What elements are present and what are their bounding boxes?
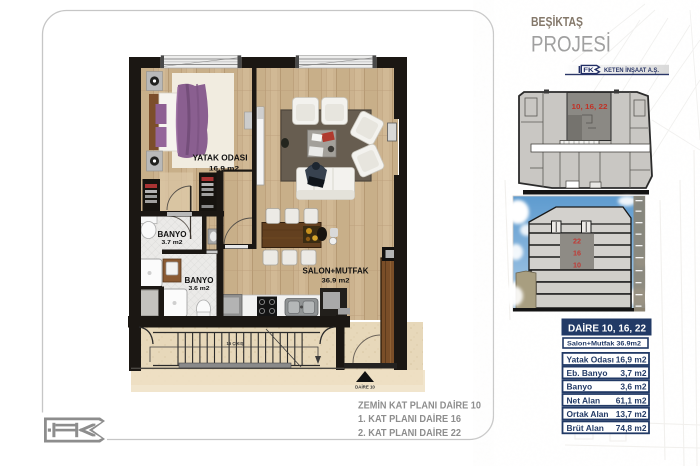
svg-text:16: 16 xyxy=(573,249,581,258)
svg-text:Ortak Alan: Ortak Alan xyxy=(567,409,609,419)
svg-text:DAİRE 10: DAİRE 10 xyxy=(355,385,375,390)
svg-text:2. KAT PLANI DAİRE 22: 2. KAT PLANI DAİRE 22 xyxy=(358,426,461,439)
svg-text:16.9 m2: 16.9 m2 xyxy=(209,166,239,173)
svg-text:Yatak Odası: Yatak Odası xyxy=(567,354,615,364)
svg-text:74,8 m2: 74,8 m2 xyxy=(616,423,647,433)
svg-text:Eb. Banyo: Eb. Banyo xyxy=(567,368,608,378)
svg-text:YATAK ODASI: YATAK ODASI xyxy=(193,154,248,163)
svg-text:3,6 m2: 3,6 m2 xyxy=(620,382,646,392)
svg-text:3,7 m2: 3,7 m2 xyxy=(620,368,646,378)
svg-text:BANYO: BANYO xyxy=(185,276,214,285)
svg-text:1. KAT PLANI DAİRE 16: 1. KAT PLANI DAİRE 16 xyxy=(358,412,461,425)
svg-text:Salon+Mutfak 36.9m2: Salon+Mutfak 36.9m2 xyxy=(567,341,641,348)
svg-text:BEŞİKTAŞ: BEŞİKTAŞ xyxy=(531,14,583,29)
svg-text:KETEN İNŞAAT A.Ş.: KETEN İNŞAAT A.Ş. xyxy=(604,67,659,74)
svg-text:ZEMİN KAT PLANI DAİRE 10: ZEMİN KAT PLANI DAİRE 10 xyxy=(358,399,481,412)
svg-text:10: 10 xyxy=(573,261,581,270)
svg-text:16 ÇIKIŞ: 16 ÇIKIŞ xyxy=(227,341,244,346)
svg-text:13,7 m2: 13,7 m2 xyxy=(616,409,647,419)
svg-text:BANYO: BANYO xyxy=(158,230,187,239)
svg-text:10, 16, 22: 10, 16, 22 xyxy=(572,102,608,111)
svg-text:61,1 m2: 61,1 m2 xyxy=(616,395,647,405)
svg-text:3.7 m2: 3.7 m2 xyxy=(162,240,183,246)
svg-text:36.9 m2: 36.9 m2 xyxy=(322,278,350,285)
svg-text:Banyo: Banyo xyxy=(567,382,593,392)
svg-text:SALON+MUTFAK: SALON+MUTFAK xyxy=(303,266,369,276)
svg-text:DAİRE 10, 16, 22: DAİRE 10, 16, 22 xyxy=(568,324,647,335)
svg-text:Brüt Alan: Brüt Alan xyxy=(567,423,604,433)
svg-text:16,9 m2: 16,9 m2 xyxy=(616,354,647,364)
svg-text:FK: FK xyxy=(583,67,594,74)
svg-text:Net Alan: Net Alan xyxy=(567,395,601,405)
svg-text:22: 22 xyxy=(573,237,581,246)
svg-text:PROJESİ: PROJESİ xyxy=(531,32,611,57)
svg-text:3.6 m2: 3.6 m2 xyxy=(189,286,210,292)
